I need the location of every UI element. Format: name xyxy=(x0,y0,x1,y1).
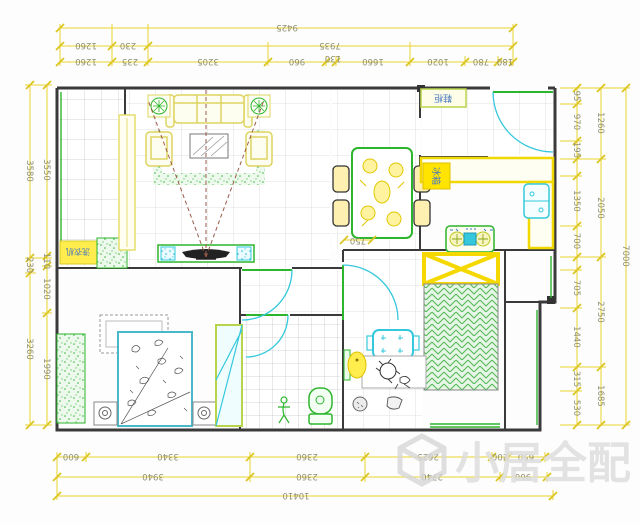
dim-label: 2360 xyxy=(296,471,318,481)
rug-band xyxy=(153,173,265,185)
dim-label: 195 xyxy=(571,142,581,158)
dim-label: 970 xyxy=(571,114,581,130)
dim-label: 3260 xyxy=(24,338,34,360)
dim-label: 780 xyxy=(473,56,489,66)
bed2-mattress xyxy=(424,284,498,390)
dim-label: 1020 xyxy=(427,56,449,66)
dim-label: 110 xyxy=(41,253,51,269)
dim-label: 1260 xyxy=(75,40,97,50)
dim-label: 1020 xyxy=(41,278,51,300)
wash-basin xyxy=(344,350,366,380)
balcony: 洗衣机 xyxy=(60,238,127,268)
dim-label: 1440 xyxy=(571,326,581,348)
floor-plan-drawing: 9425 1260 230 7935 1260 235 3205 960 130… xyxy=(0,0,640,525)
gas-stove xyxy=(446,226,494,252)
coffee-table xyxy=(190,134,228,158)
dim-label: 1350 xyxy=(571,190,581,212)
dim-label: 1660 xyxy=(362,56,384,66)
dim-label: 3205 xyxy=(197,56,219,66)
bed-2 xyxy=(424,254,498,390)
sink xyxy=(524,184,549,218)
side-table xyxy=(367,330,419,358)
dim-label: 750 xyxy=(350,235,366,245)
dim-label: 315 xyxy=(571,371,581,387)
dim-label: 235 xyxy=(122,56,138,66)
dim-label: 600 xyxy=(63,451,79,461)
floor-plan-page: 9425 1260 230 7935 1260 235 3205 960 130… xyxy=(0,0,640,525)
dim-label: 230 xyxy=(24,257,34,273)
dim-label: 3580 xyxy=(24,160,34,182)
master-bed xyxy=(118,332,192,426)
dim-label: 3550 xyxy=(41,159,51,181)
bay-plants xyxy=(57,334,85,423)
dim-label: 1990 xyxy=(41,358,51,380)
dim-label: 700 xyxy=(571,233,581,249)
dim-label: 130 xyxy=(325,53,341,63)
dim-label: 3940 xyxy=(142,471,164,481)
dim-label: 180 xyxy=(497,56,513,66)
dim-label: 3340 xyxy=(157,451,179,461)
dim-label: 7935 xyxy=(319,40,341,50)
dim-label: 2360 xyxy=(296,451,318,461)
dim-label: 7000 xyxy=(620,245,630,267)
dim-label: 95 xyxy=(571,91,581,102)
dim-label: 230 xyxy=(120,40,136,50)
fridge-label: 冰箱 xyxy=(430,167,442,185)
dim-label: 9425 xyxy=(276,22,298,32)
kitchen: 冰箱 xyxy=(421,158,553,252)
speaker xyxy=(161,247,175,260)
dim-label: 1260 xyxy=(595,112,605,134)
dim-label: 960 xyxy=(289,56,305,66)
watermark-text: 小居全配 xyxy=(455,438,631,489)
wardrobe xyxy=(216,325,242,426)
dim-label: 2050 xyxy=(595,197,605,219)
dim-label: 1685 xyxy=(595,385,605,407)
dim-label: 1260 xyxy=(75,56,97,66)
speaker xyxy=(237,247,251,260)
sofa xyxy=(166,95,252,127)
dim-label: 2750 xyxy=(595,301,605,323)
dim-label: 705 xyxy=(571,280,581,296)
shoe-cabinet-label: 鞋柜 xyxy=(434,92,452,104)
dim-label: 530 xyxy=(571,400,581,416)
dim-label: 10410 xyxy=(282,490,309,500)
washing-machine-label: 洗衣机 xyxy=(66,247,90,257)
toilet xyxy=(309,388,332,424)
